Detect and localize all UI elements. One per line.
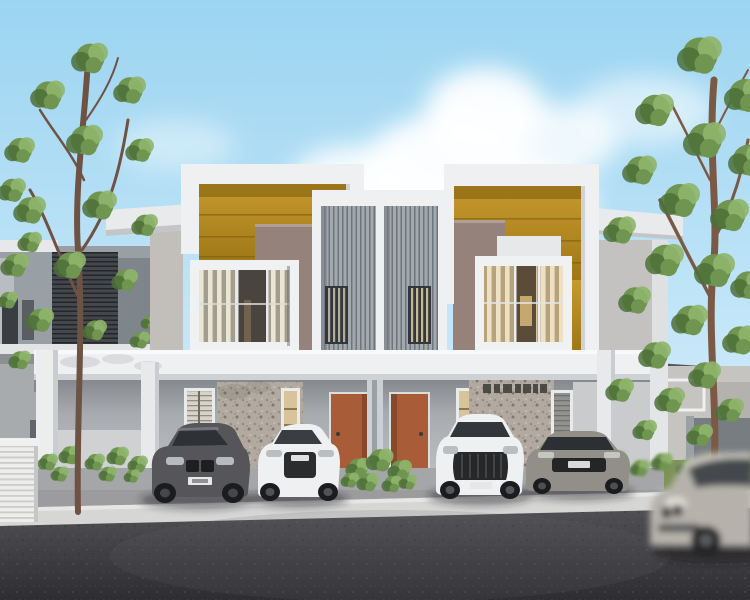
ac-louver-cabinet <box>0 438 40 522</box>
right-unit-window <box>475 256 572 352</box>
center-louver-screen <box>312 190 447 362</box>
architectural-render <box>0 0 750 600</box>
scene-canvas <box>0 0 750 600</box>
license-plate <box>568 461 590 468</box>
license-plate <box>291 455 309 461</box>
left-unit-window <box>190 260 299 352</box>
license-plate <box>470 482 492 489</box>
